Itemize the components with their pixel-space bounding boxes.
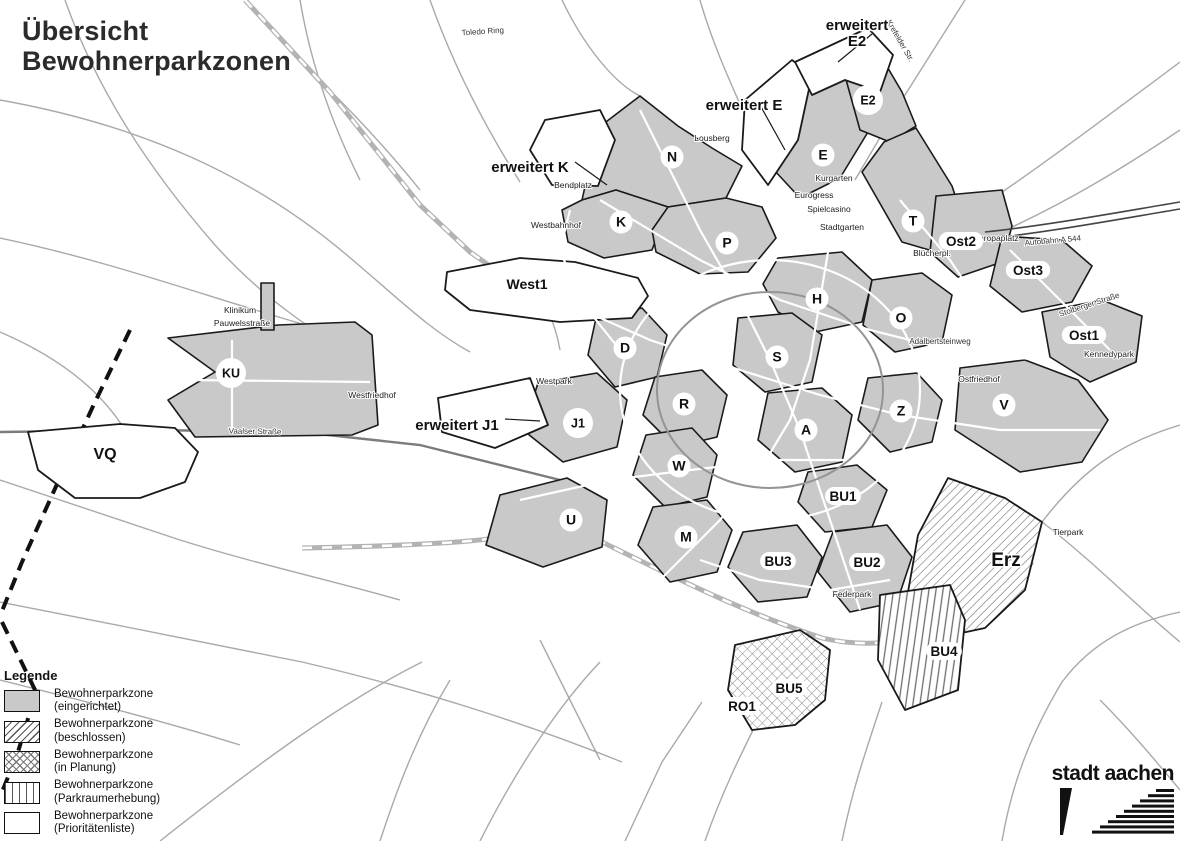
zone-label-A: A (795, 419, 818, 442)
legend-swatch-diagonal-hatch (4, 721, 40, 743)
extension-label-erweitert-K: erweitert K (491, 159, 569, 176)
legend-item-0: Bewohnerparkzone(eingerichtet) (4, 688, 234, 714)
svg-text:Ost3: Ost3 (1013, 263, 1044, 278)
zone-label-Z: Z (890, 400, 913, 423)
legend-swatch-cross-hatch (4, 751, 40, 773)
zone-label-E2: E2 (853, 85, 883, 115)
svg-text:E2: E2 (860, 94, 875, 108)
zone-label-Ost3: Ost3 (1006, 261, 1050, 279)
zone-label-BU1: BU1 (825, 487, 861, 505)
place-label: Westfriedhof (348, 390, 396, 400)
svg-text:J1: J1 (571, 417, 585, 431)
zone-label-N: N (661, 146, 684, 169)
legend-label: Bewohnerparkzone(beschlossen) (54, 718, 153, 744)
street-label: Vaalser Straße (229, 427, 282, 437)
place-label: Klinikum (224, 305, 256, 315)
place-label: Bendplatz (554, 180, 592, 190)
svg-text:R: R (679, 396, 689, 412)
legend-item-3: Bewohnerparkzone(Parkraumerhebung) (4, 779, 234, 805)
extension-label-erweitert-E: erweitert E (706, 97, 783, 114)
zone-label-P: P (716, 232, 739, 255)
place-label: Westpark (536, 376, 572, 386)
zone-label-RO1: RO1 (724, 697, 760, 715)
svg-text:BU5: BU5 (775, 681, 802, 696)
zone-label-K: K (610, 211, 633, 234)
zone-label-BU3: BU3 (760, 552, 796, 570)
svg-text:Z: Z (897, 403, 906, 419)
legend-label: Bewohnerparkzone(in Planung) (54, 749, 153, 775)
place-label: Eurogress (795, 190, 834, 200)
zone-label-Ost1: Ost1 (1062, 326, 1106, 344)
zone-label-H: H (806, 288, 829, 311)
svg-text:U: U (566, 512, 576, 528)
zone-label-R: R (673, 393, 696, 416)
map-title-line1: Übersicht (22, 16, 291, 46)
map-title-line2: Bewohnerparkzonen (22, 46, 291, 76)
place-label: Kennedypark (1084, 349, 1135, 359)
legend: Legende Bewohnerparkzone(eingerichtet)Be… (4, 668, 234, 841)
legend-item-list: Bewohnerparkzone(eingerichtet)Bewohnerpa… (4, 688, 234, 836)
zone-label-VQ: VQ (93, 446, 116, 463)
zone-label-BU2: BU2 (849, 553, 885, 571)
legend-label: Bewohnerparkzone(Prioritätenliste) (54, 810, 153, 836)
svg-text:West1: West1 (507, 276, 548, 292)
legend-label: Bewohnerparkzone(eingerichtet) (54, 688, 153, 714)
legend-item-4: Bewohnerparkzone(Prioritätenliste) (4, 810, 234, 836)
place-label: Ostfriedhof (958, 374, 1000, 384)
zone-label-KU: KU (216, 358, 246, 388)
svg-text:K: K (616, 214, 626, 230)
place-label: Spielcasino (807, 204, 851, 214)
legend-swatch-vertical-lines (4, 782, 40, 804)
legend-item-1: Bewohnerparkzone(beschlossen) (4, 718, 234, 744)
zone-label-T: T (902, 210, 925, 233)
svg-text:S: S (772, 349, 781, 365)
place-label: Lousberg (694, 133, 730, 143)
svg-text:V: V (999, 397, 1009, 413)
svg-text:D: D (620, 340, 630, 356)
legend-header: Legende (4, 668, 234, 683)
place-label: Kurgarten (815, 173, 853, 183)
extension-label-erweitert-J1: erweitert J1 (415, 417, 498, 434)
svg-text:A: A (801, 422, 811, 438)
zone-label-J1: J1 (563, 408, 593, 438)
svg-text:O: O (896, 310, 907, 326)
zone-label-Erz: Erz (991, 550, 1021, 571)
place-label: Tierpark (1053, 527, 1085, 537)
legend-swatch-white (4, 812, 40, 834)
stadt-aachen-logo: stadt aachen (1052, 762, 1174, 837)
svg-text:M: M (680, 529, 692, 545)
place-label: Federpark (833, 589, 872, 599)
map-canvas: Toledo RingAutobahn A 544Vaalser StraßeK… (0, 0, 1180, 841)
svg-text:Erz: Erz (991, 550, 1021, 571)
svg-text:BU4: BU4 (930, 644, 957, 659)
zone-label-Ost2: Ost2 (939, 232, 983, 250)
svg-text:RO1: RO1 (728, 699, 756, 714)
zone-label-V: V (993, 394, 1016, 417)
svg-text:VQ: VQ (93, 446, 116, 463)
svg-text:E: E (818, 147, 827, 163)
logo-text: stadt aachen (1052, 762, 1174, 786)
logo-mark-icon (1060, 787, 1174, 837)
legend-swatch-solid-gray (4, 690, 40, 712)
zone-label-M: M (675, 526, 698, 549)
place-label: Pauwelsstraße (214, 318, 270, 328)
zone-label-O: O (890, 307, 913, 330)
svg-text:BU3: BU3 (764, 554, 791, 569)
place-label: Westbahnhof (531, 220, 582, 230)
svg-text:BU1: BU1 (829, 489, 856, 504)
logo-stairs (1092, 789, 1174, 834)
zone-label-BU5: BU5 (771, 679, 807, 697)
legend-label: Bewohnerparkzone(Parkraumerhebung) (54, 779, 160, 805)
zone-label-West1: West1 (507, 276, 548, 292)
svg-text:BU2: BU2 (853, 555, 880, 570)
zone-label-U: U (560, 509, 583, 532)
zone-label-D: D (614, 337, 637, 360)
map-title: Übersicht Bewohnerparkzonen (22, 16, 291, 76)
zone-label-W: W (668, 455, 691, 478)
svg-text:P: P (722, 235, 731, 251)
zone-label-BU4: BU4 (926, 642, 962, 660)
legend-item-2: Bewohnerparkzone(in Planung) (4, 749, 234, 775)
zone-label-E: E (812, 144, 835, 167)
zone-label-S: S (766, 346, 789, 369)
street-label: Adalbertsteinweg (909, 337, 970, 346)
svg-text:T: T (909, 213, 918, 229)
svg-text:Ost1: Ost1 (1069, 328, 1100, 343)
svg-text:N: N (667, 149, 677, 165)
svg-text:W: W (672, 458, 686, 474)
svg-text:H: H (812, 291, 822, 307)
place-label: Stadtgarten (820, 222, 864, 232)
svg-text:KU: KU (222, 367, 240, 381)
svg-text:Ost2: Ost2 (946, 234, 976, 249)
